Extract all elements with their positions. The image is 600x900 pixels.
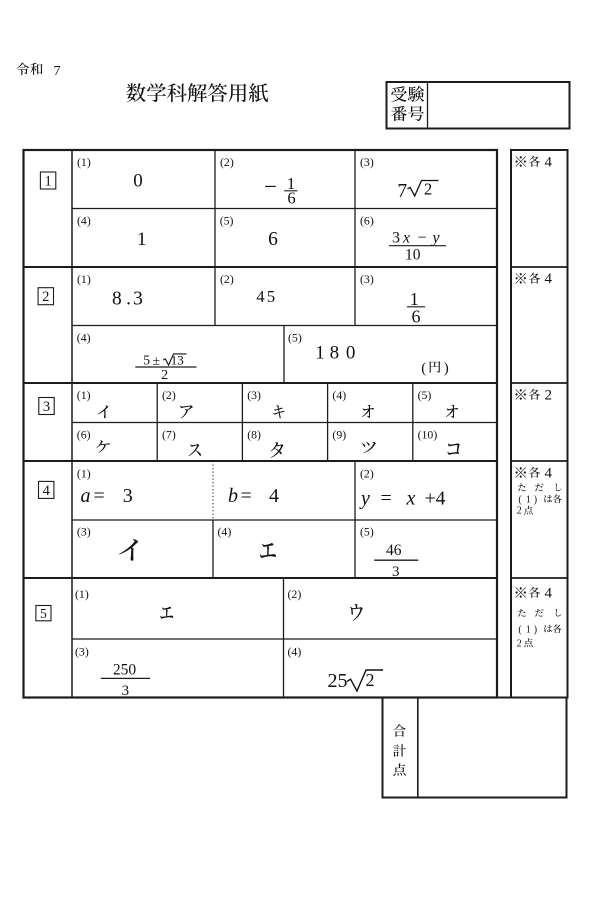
svg-text:(3): (3) — [360, 272, 374, 286]
svg-text:6: 6 — [287, 188, 295, 207]
svg-text:1: 1 — [526, 624, 531, 635]
svg-text:7: 7 — [397, 181, 407, 202]
svg-text:3: 3 — [392, 564, 400, 580]
svg-text:(2): (2) — [288, 587, 302, 601]
svg-text:(10): (10) — [418, 428, 438, 442]
svg-text:7: 7 — [54, 64, 61, 79]
svg-text:8: 8 — [330, 342, 340, 363]
svg-text:(2): (2) — [360, 467, 374, 481]
svg-text:(3): (3) — [77, 525, 91, 539]
svg-text:a: a — [81, 485, 91, 507]
svg-text:(1): (1) — [77, 272, 91, 286]
svg-text:3: 3 — [122, 683, 130, 699]
svg-text:−: − — [264, 174, 277, 199]
svg-text:.: . — [126, 289, 131, 310]
svg-text:4: 4 — [544, 465, 552, 481]
svg-text:): ) — [534, 495, 537, 506]
svg-text:(3): (3) — [247, 388, 261, 402]
svg-text:2: 2 — [161, 368, 168, 383]
svg-text:y: y — [359, 488, 370, 510]
svg-text:5: 5 — [267, 287, 275, 306]
svg-text:1: 1 — [315, 342, 325, 363]
svg-text:3: 3 — [133, 289, 143, 310]
svg-text:(3): (3) — [75, 645, 89, 659]
svg-text:2: 2 — [42, 289, 49, 305]
svg-text:(6): (6) — [360, 214, 374, 228]
svg-text:(3): (3) — [360, 155, 374, 169]
svg-text:2: 2 — [517, 638, 522, 649]
svg-text:13: 13 — [171, 353, 184, 368]
svg-text:0: 0 — [346, 342, 356, 363]
svg-text:+: + — [425, 488, 436, 510]
svg-text:(1): (1) — [77, 467, 91, 481]
svg-text:4: 4 — [256, 287, 264, 306]
svg-text:4: 4 — [436, 488, 446, 510]
svg-text:5: 5 — [143, 353, 150, 368]
svg-text:x: x — [402, 230, 410, 247]
svg-text:): ) — [444, 361, 449, 377]
svg-text:(5): (5) — [418, 388, 432, 402]
svg-text:0: 0 — [133, 171, 143, 192]
svg-text:(4): (4) — [288, 645, 302, 659]
svg-text:(7): (7) — [162, 428, 176, 442]
svg-text:(8): (8) — [247, 428, 261, 442]
svg-text:(6): (6) — [77, 428, 91, 442]
svg-text:y: y — [431, 230, 441, 247]
svg-text:4: 4 — [43, 483, 51, 499]
svg-text:): ) — [534, 624, 537, 635]
svg-text:(9): (9) — [332, 428, 346, 442]
svg-text:(1): (1) — [77, 155, 91, 169]
svg-text:10: 10 — [405, 247, 421, 264]
svg-text:4: 4 — [544, 585, 552, 601]
svg-text:2: 2 — [424, 180, 432, 199]
svg-text:=: = — [241, 485, 252, 507]
svg-text:x: x — [406, 488, 416, 510]
svg-text:(2): (2) — [220, 272, 234, 286]
svg-text:(4): (4) — [77, 330, 91, 344]
svg-text:(5): (5) — [288, 330, 302, 344]
svg-text:2: 2 — [544, 387, 552, 403]
svg-text:2: 2 — [366, 670, 375, 690]
svg-text:6: 6 — [412, 306, 421, 326]
svg-text:3: 3 — [123, 485, 133, 507]
svg-text:1: 1 — [44, 174, 51, 190]
svg-text:4: 4 — [544, 271, 552, 287]
svg-text:250: 250 — [113, 661, 137, 678]
svg-text:(4): (4) — [332, 388, 346, 402]
svg-text:=: = — [381, 488, 392, 510]
svg-text:(5): (5) — [360, 525, 374, 539]
svg-text:b: b — [228, 485, 238, 507]
svg-text:(5): (5) — [220, 214, 234, 228]
svg-text:(1): (1) — [77, 388, 91, 402]
svg-text:−: − — [418, 230, 427, 247]
svg-text:4: 4 — [544, 154, 552, 170]
svg-text:6: 6 — [268, 229, 278, 250]
svg-text:2: 2 — [517, 506, 522, 517]
svg-text:46: 46 — [386, 542, 402, 559]
svg-text:5: 5 — [40, 606, 47, 621]
svg-text:=: = — [94, 485, 105, 507]
svg-text:(: ( — [518, 495, 522, 506]
svg-text:3: 3 — [43, 399, 50, 415]
svg-text:1: 1 — [137, 229, 147, 250]
svg-text:(4): (4) — [77, 214, 91, 228]
svg-text:(2): (2) — [162, 388, 176, 402]
svg-text:(: ( — [518, 624, 522, 635]
svg-text:(2): (2) — [220, 155, 234, 169]
svg-text:8: 8 — [112, 289, 122, 310]
svg-text:3: 3 — [392, 230, 400, 247]
svg-text:(4): (4) — [218, 525, 232, 539]
svg-text:(1): (1) — [75, 587, 89, 601]
svg-text:(: ( — [421, 361, 426, 377]
svg-text:4: 4 — [269, 485, 279, 507]
svg-text:25: 25 — [328, 670, 348, 692]
svg-text:1: 1 — [526, 495, 531, 506]
